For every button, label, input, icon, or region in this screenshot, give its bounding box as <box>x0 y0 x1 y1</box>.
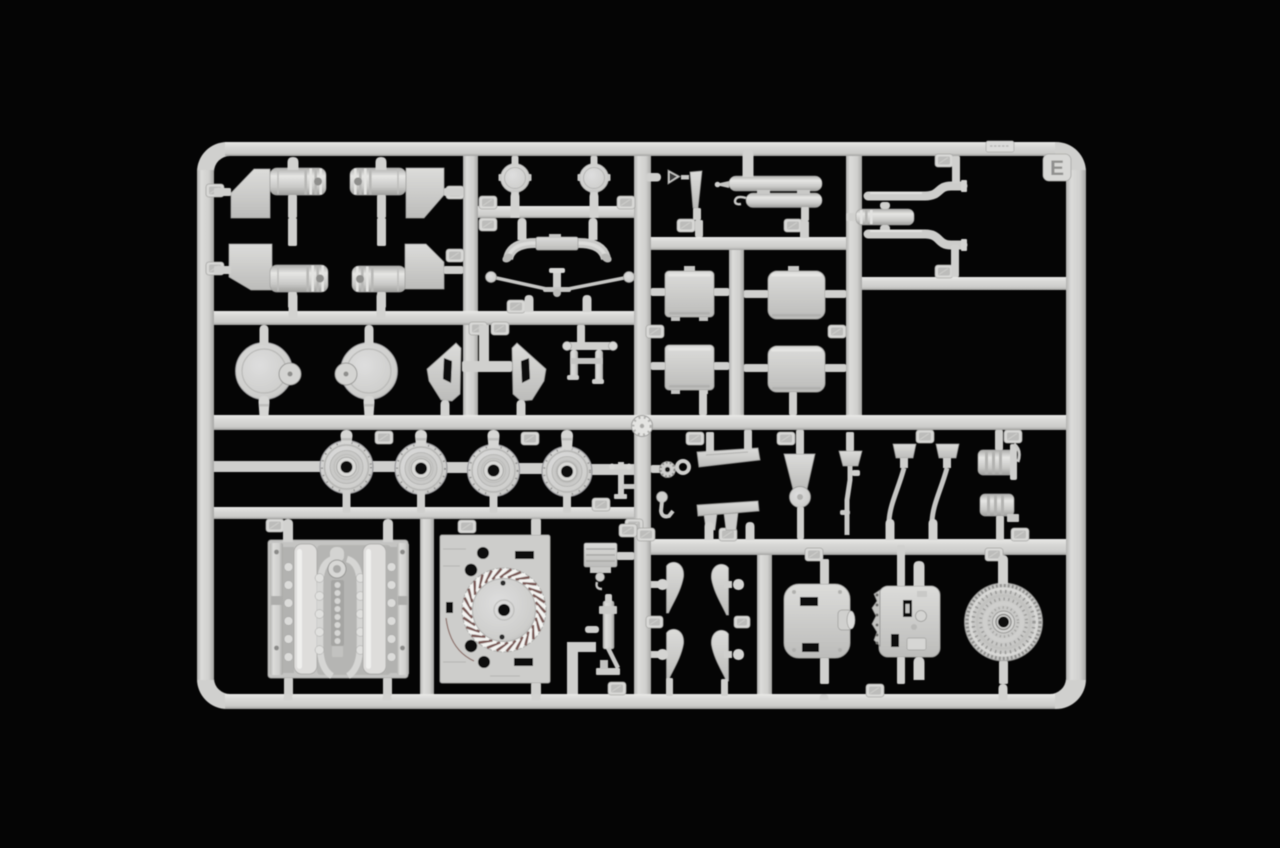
svg-text:E: E <box>1050 157 1064 180</box>
